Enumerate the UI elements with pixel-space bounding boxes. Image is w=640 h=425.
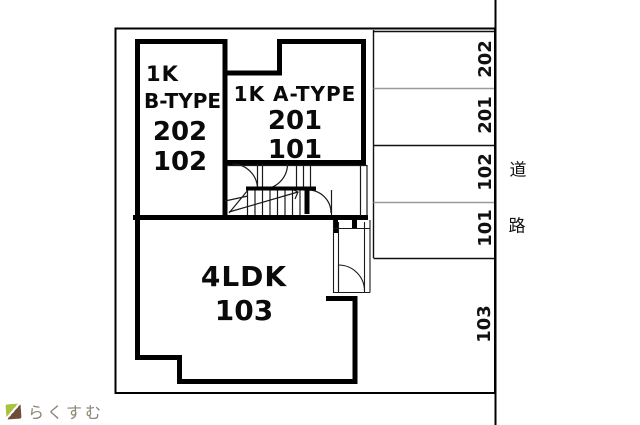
parking-stall-label-202: 202 — [477, 40, 495, 78]
parking-stall-label-102: 102 — [477, 153, 495, 191]
landing-door-swing — [308, 190, 332, 215]
floorplan-canvas: 1K B-TYPE 202 102 1K A-TYPE 201 101 4LDK… — [0, 0, 640, 425]
unit-atype-room-lower: 101 — [225, 137, 365, 163]
floorplan-drawing — [0, 0, 640, 425]
house-leaf-logo-icon — [5, 403, 21, 419]
logo-text: らくすむ — [28, 399, 104, 423]
unit-atype-label: 1K A-TYPE — [225, 84, 365, 104]
unit-btype-room-upper: 202 — [135, 119, 225, 145]
site-logo: らくすむ — [6, 401, 104, 421]
entry-alcove — [333, 220, 370, 293]
door-swing-left — [233, 164, 258, 189]
unit-btype-type-label: B-TYPE — [144, 91, 221, 111]
unit-4ldk-room: 103 — [165, 297, 323, 325]
road-label-char-1: 道 — [510, 163, 527, 180]
parking-stall-label-101: 101 — [477, 209, 495, 247]
door-swing-right — [263, 164, 288, 189]
unit-btype-room-lower: 102 — [135, 149, 225, 175]
parking-stall-label-103: 103 — [476, 305, 494, 343]
parking-stall-label-201: 201 — [477, 96, 495, 134]
unit-btype-size-label: 1K — [146, 64, 179, 85]
unit-atype-room-upper: 201 — [225, 108, 365, 134]
upper-flight-marks — [297, 166, 311, 187]
entry-door-swing — [339, 265, 365, 291]
stair-structure — [246, 189, 316, 215]
unit-4ldk-label: 4LDK — [165, 263, 323, 291]
road-label-char-2: 路 — [509, 219, 526, 236]
